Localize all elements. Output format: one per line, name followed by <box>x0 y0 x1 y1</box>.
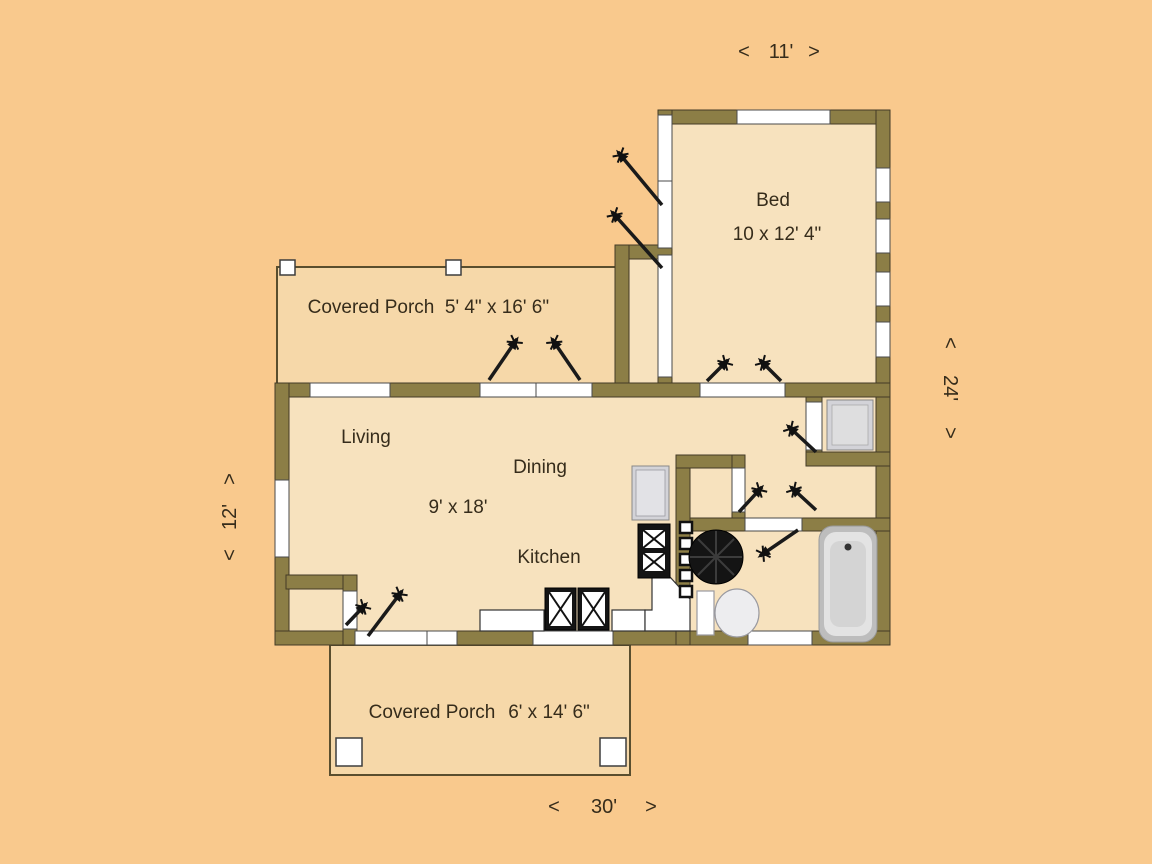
porch-bottom-label: Covered Porch <box>369 702 496 723</box>
porch-top-label: Covered Porch <box>308 297 435 318</box>
entry-closet-north-wall <box>286 575 352 589</box>
kitchen-label: Kitchen <box>517 547 580 568</box>
bedroom-label: Bed <box>756 190 790 211</box>
dim-arrow-left: < <box>548 796 560 818</box>
bedroom-floor <box>658 110 890 400</box>
dimension-right: < 24' > <box>939 337 961 439</box>
window <box>876 168 890 202</box>
bathtub <box>819 526 877 642</box>
porch-top-size: 5' 4" x 16' 6" <box>445 297 549 318</box>
range <box>638 524 670 578</box>
porch-post <box>446 260 461 275</box>
toilet <box>697 589 759 637</box>
window <box>533 631 613 645</box>
dim-arrow-top: < <box>939 337 961 349</box>
porch-post <box>600 738 626 766</box>
floor-plan-canvas: Bed 10 x 12' 4" Covered Porch 5' 4" x 16… <box>0 0 1152 864</box>
refrigerator <box>632 466 669 520</box>
window <box>876 272 890 306</box>
porch-post <box>336 738 362 766</box>
dim-arrow-right: > <box>808 41 820 63</box>
window <box>275 480 289 557</box>
dim-right-value: 24' <box>939 375 961 401</box>
bedroom-door <box>700 383 785 397</box>
main-room-size: 9' x 18' <box>428 497 487 518</box>
closet-west-wall <box>615 245 629 397</box>
dim-arrow-bottom: < <box>219 549 241 561</box>
window <box>876 219 890 253</box>
window <box>737 110 830 124</box>
bedroom-size: 10 x 12' 4" <box>733 224 822 245</box>
dimension-bottom: < 30' > <box>548 796 657 818</box>
dining-label: Dining <box>513 457 567 478</box>
dim-bottom-value: 30' <box>591 796 617 818</box>
dim-left-value: 12' <box>219 504 241 530</box>
washer <box>827 400 873 450</box>
living-label: Living <box>341 427 391 448</box>
porch-bottom-size: 6' x 14' 6" <box>508 702 590 723</box>
dim-arrow-right: > <box>645 796 657 818</box>
hall-closet-south-wall <box>806 452 890 466</box>
floor-plan: Bed 10 x 12' 4" Covered Porch 5' 4" x 16… <box>0 0 1152 864</box>
window <box>748 631 812 645</box>
bedroom-closet-door <box>658 255 672 377</box>
dim-arrow-bottom: > <box>939 427 961 439</box>
dim-arrow-left: < <box>738 41 750 63</box>
dimension-left: < 12' > <box>219 473 241 561</box>
door-swing-arrow <box>618 152 662 205</box>
wood-stove <box>689 530 743 584</box>
bath-door <box>745 518 802 531</box>
kitchen-counter <box>480 610 544 631</box>
dim-top-value: 11' <box>769 41 794 63</box>
window <box>876 322 890 357</box>
covered-porch-top-floor <box>277 267 620 385</box>
kitchen-counter <box>612 610 645 631</box>
porch-post <box>280 260 295 275</box>
window <box>310 383 390 397</box>
dim-arrow-top: > <box>219 473 241 485</box>
dimension-top: < 11' > <box>738 41 820 63</box>
